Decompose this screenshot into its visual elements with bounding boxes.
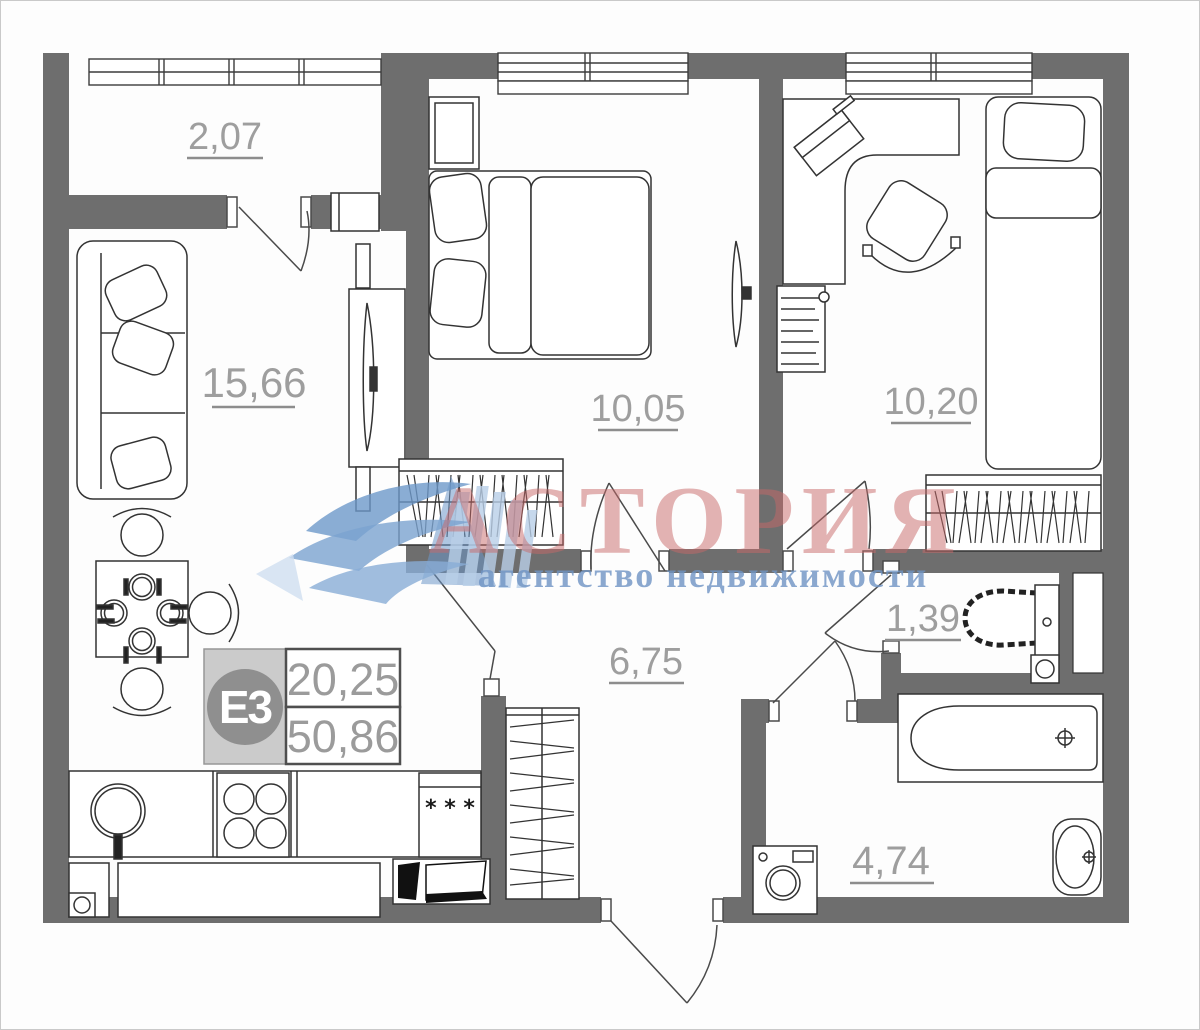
unit-badge: Е3 20,25 50,86 (204, 649, 400, 764)
office-chair (862, 176, 960, 273)
windows (89, 53, 1032, 94)
entrance-door (601, 899, 723, 1003)
svg-text:2,07: 2,07 (188, 116, 262, 158)
fridge: * * * (419, 773, 481, 857)
svg-text:6,75: 6,75 (609, 641, 683, 683)
room-label-bedroom2: 10,20 (883, 381, 978, 423)
wc-vent-box (1031, 655, 1059, 683)
bedroom2-window (846, 53, 1032, 94)
room-label-bathroom: 4,74 (850, 839, 934, 883)
balcony-window (89, 59, 381, 85)
single-bed (986, 97, 1101, 469)
room-label-bedroom: 10,05 (590, 388, 685, 430)
tv-unit (349, 244, 405, 511)
toilet (965, 585, 1059, 659)
unit-area-living: 20,25 (287, 654, 400, 705)
room-label-hallway: 6,75 (609, 641, 684, 683)
svg-text:10,05: 10,05 (590, 388, 685, 430)
washing-machine (753, 846, 817, 914)
kitchen-stove (217, 773, 289, 857)
bookshelf (777, 286, 829, 372)
hallway-wardrobe (506, 708, 579, 899)
svg-text:10,20: 10,20 (883, 381, 978, 423)
double-bed (428, 171, 651, 359)
bathtub (898, 694, 1103, 782)
wash-basin (1053, 819, 1101, 895)
bedroom-cabinet (429, 97, 479, 169)
svg-text:4,74: 4,74 (852, 839, 930, 883)
sofa (77, 241, 187, 499)
svg-text:15,66: 15,66 (201, 359, 306, 406)
unit-type-label: Е3 (219, 681, 272, 733)
svg-text:1,39: 1,39 (886, 598, 960, 640)
shaft (1073, 573, 1103, 673)
room-label-living: 15,66 (201, 359, 306, 407)
freezer-stars: * * * (425, 796, 475, 821)
room-label-wc: 1,39 (885, 598, 961, 640)
unit-area-total: 50,86 (287, 711, 400, 762)
floor-plan-page: * * * (0, 0, 1200, 1030)
floor-plan-drawing: * * * (1, 1, 1200, 1030)
room-label-balcony: 2,07 (187, 116, 263, 158)
bedroom-window (498, 53, 688, 94)
wall-shelf (331, 193, 379, 231)
balcony-door (227, 197, 311, 271)
bedroom-tv (732, 241, 751, 347)
watermark-tagline: агентство недвижимости (478, 555, 929, 595)
bathroom-door (769, 641, 857, 721)
